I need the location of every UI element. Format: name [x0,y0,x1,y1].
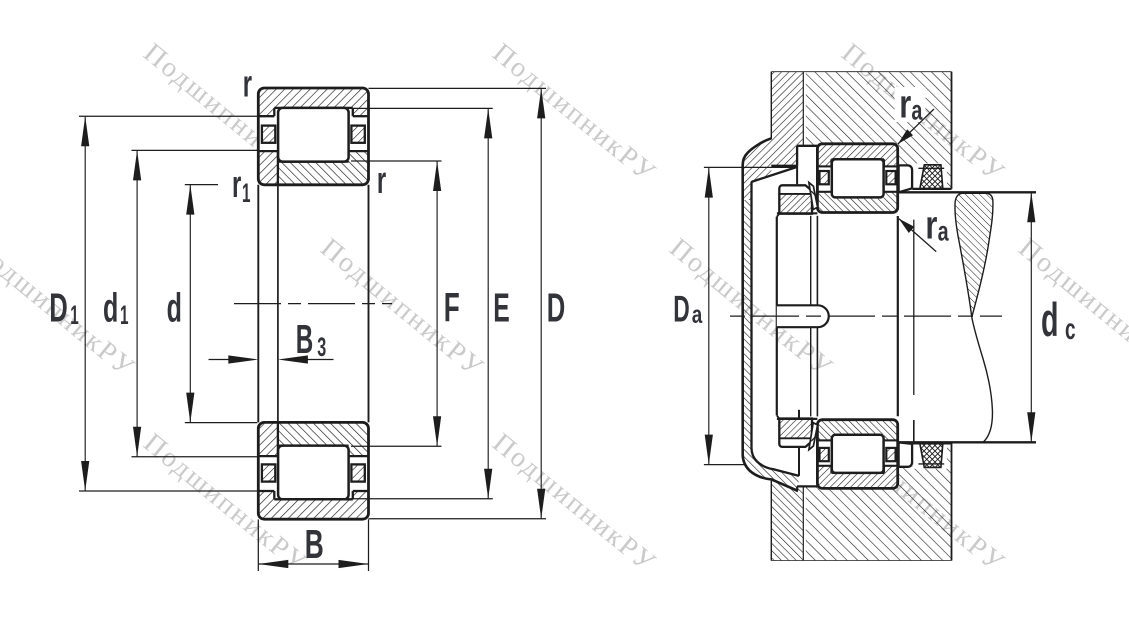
svg-text:r: r [232,164,241,206]
svg-text:B: B [296,316,314,362]
svg-text:3: 3 [317,332,326,362]
svg-text:D: D [673,288,690,329]
svg-text:r: r [243,64,252,106]
svg-text:a: a [938,216,949,247]
svg-text:a: a [692,301,703,329]
svg-text:1: 1 [120,300,129,330]
svg-text:D: D [547,284,566,330]
svg-text:r: r [377,160,386,202]
svg-text:c: c [1065,313,1076,346]
svg-text:a: a [911,95,922,126]
svg-text:F: F [444,284,460,330]
svg-text:E: E [493,284,510,330]
svg-text:B: B [305,521,324,567]
svg-text:1: 1 [242,178,251,208]
svg-text:1: 1 [70,300,79,330]
svg-text:d: d [167,284,182,330]
svg-text:D: D [49,284,68,330]
svg-text:d: d [1041,293,1059,346]
svg-text:d: d [103,284,118,330]
svg-text:r: r [899,83,911,127]
svg-text:r: r [925,204,937,248]
